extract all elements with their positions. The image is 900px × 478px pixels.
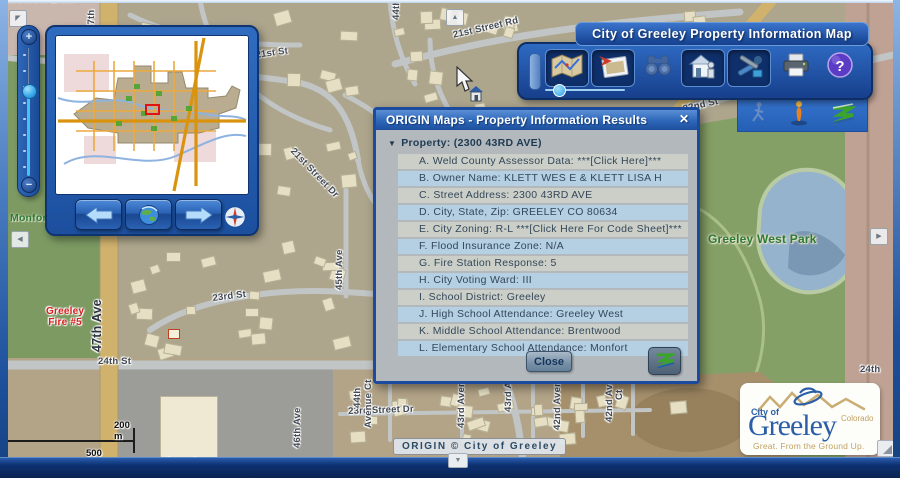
zoom-in-button[interactable]: + <box>21 29 37 45</box>
toolbar-drag-handle[interactable] <box>529 53 541 90</box>
map-label: Avenue Ct <box>363 380 374 428</box>
full-extent-button[interactable] <box>125 199 172 230</box>
tools-button[interactable] <box>727 49 771 87</box>
map-view-button[interactable] <box>545 49 589 87</box>
binoculars-icon <box>642 52 674 83</box>
frame-left <box>0 0 8 478</box>
zoom-out-button[interactable]: − <box>21 177 37 193</box>
printer-icon <box>780 51 812 84</box>
dialog-title: ORIGIN Maps - Property Information Resul… <box>386 113 647 127</box>
row-high-school: J. High School Attendance: Greeley West <box>398 307 688 322</box>
logo-state: Colorado <box>841 414 873 423</box>
frame-right <box>893 0 900 478</box>
svg-text:?: ? <box>835 58 844 75</box>
map-label: 47th Ave <box>90 299 104 352</box>
walking-person-icon[interactable] <box>749 101 769 130</box>
dialog-close-icon[interactable]: ✕ <box>679 112 689 126</box>
overview-map[interactable] <box>55 35 249 195</box>
opacity-slider-handle[interactable] <box>553 84 566 97</box>
compass-icon <box>223 205 247 229</box>
attribution-collapse-button[interactable]: ▼ <box>448 453 468 468</box>
map-label: 24th St <box>98 356 131 367</box>
logo-tagline: Great. From the Ground Up. <box>753 441 865 451</box>
map-attribution: ORIGIN © City of Greeley <box>393 438 566 455</box>
dialog-body: ▼Property: (2300 43RD AVE) A. Weld Count… <box>376 130 697 381</box>
help-icon: ? <box>826 51 854 84</box>
property-info-button[interactable] <box>681 49 725 87</box>
map-label: 44th <box>352 388 363 408</box>
map-label: 24th <box>860 364 880 375</box>
property-header[interactable]: ▼Property: (2300 43RD AVE) <box>388 137 542 149</box>
zoom-slider-handle[interactable] <box>22 84 37 99</box>
binoculars-button <box>637 49 679 85</box>
origin-tool-button[interactable] <box>648 347 681 375</box>
frame-top <box>0 0 900 3</box>
pan-left-button[interactable]: ◀ <box>11 231 29 248</box>
back-extent-button[interactable] <box>75 199 122 230</box>
row-school-district: I. School District: Greeley <box>398 290 688 305</box>
house-info-icon <box>687 52 719 85</box>
aerial-photo-icon <box>596 52 630 85</box>
scale-metric: 200 m <box>114 420 130 442</box>
property-rows: A. Weld County Assessor Data: ***[Click … <box>398 154 688 358</box>
main-toolbar: ? City of Greeley Property Information M… <box>517 22 871 97</box>
toolbar-body: ? <box>517 42 873 100</box>
logo-name: Greeley <box>748 409 836 443</box>
row-flood-zone: F. Flood Insurance Zone: N/A <box>398 239 688 254</box>
row-middle-school: K. Middle School Attendance: Brentwood <box>398 324 688 339</box>
forward-extent-button[interactable] <box>175 199 222 230</box>
map-label: 44th Ave <box>391 0 402 20</box>
help-button[interactable]: ? <box>819 49 861 85</box>
row-voting-ward: H. City Voting Ward: III <box>398 273 688 288</box>
print-button[interactable] <box>775 49 817 85</box>
layer-opacity-slider[interactable] <box>545 87 625 93</box>
map-label: Ct <box>614 390 625 400</box>
zoom-slider[interactable]: + − <box>17 25 40 197</box>
aerial-view-button[interactable] <box>591 49 635 87</box>
overview-panel <box>45 25 259 236</box>
pan-right-button[interactable]: ▶ <box>870 228 888 245</box>
origin-z-icon[interactable] <box>830 101 856 130</box>
map-label: 45th Ave <box>334 250 345 291</box>
person-icon[interactable] <box>790 100 808 131</box>
row-city-zoning[interactable]: E. City Zoning: R-L ***[Click Here For C… <box>398 222 688 237</box>
close-button[interactable]: Close <box>526 351 572 372</box>
map-label: Greeley West Park <box>708 232 817 246</box>
dialog-title-bar[interactable]: ORIGIN Maps - Property Information Resul… <box>376 110 697 130</box>
origin-z-icon <box>654 349 676 374</box>
fire-station-icon <box>168 329 180 339</box>
toolbar-title: City of Greeley Property Information Map <box>575 22 869 46</box>
row-city-state-zip: D. City, State, Zip: GREELEY CO 80634 <box>398 205 688 220</box>
map-label: Greeley Fire #5 <box>46 306 84 328</box>
secondary-toolbar <box>737 99 868 132</box>
row-owner-name: B. Owner Name: KLETT WES E & KLETT LISA … <box>398 171 688 186</box>
row-assessor-data[interactable]: A. Weld County Assessor Data: ***[Click … <box>398 154 688 169</box>
city-logo: City of Greeley Colorado Great. From the… <box>740 383 880 455</box>
tools-icon <box>733 52 765 85</box>
row-fire-response: G. Fire Station Response: 5 <box>398 256 688 271</box>
property-results-dialog: ORIGIN Maps - Property Information Resul… <box>373 107 700 384</box>
map-label: 46th Ave <box>292 408 303 449</box>
map-icon <box>550 53 584 84</box>
collapse-triangle-icon: ▼ <box>388 139 396 148</box>
pan-up-button[interactable]: ▲ <box>446 9 464 26</box>
row-street-address: C. Street Address: 2300 43RD AVE <box>398 188 688 203</box>
app-window: Monfort Elem47th21st St44th Ave21st Stre… <box>0 0 900 478</box>
